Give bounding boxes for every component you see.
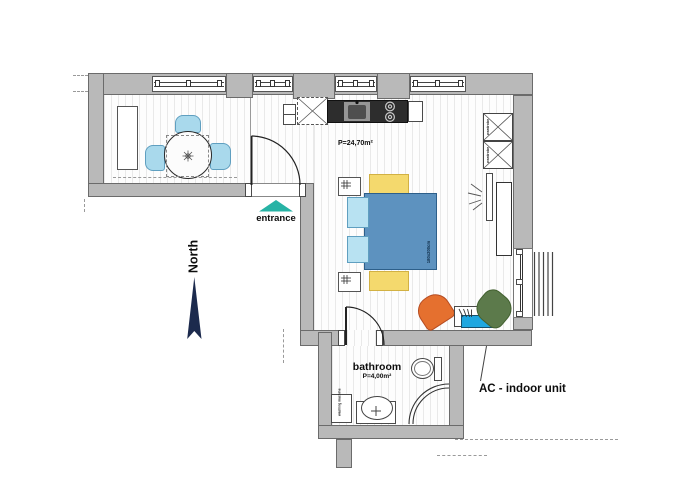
ac-leader-line (481, 346, 487, 381)
toilet-bowl-inner (414, 361, 431, 376)
window-handle (270, 80, 275, 87)
bathroom-bottom-wall (318, 425, 464, 439)
window-handle (435, 80, 440, 87)
toilet-tank (434, 357, 442, 381)
bed (364, 193, 437, 270)
dining-chair (210, 143, 231, 170)
dining-chair (145, 145, 165, 171)
bed-pillow (347, 197, 369, 228)
french-door-handle (516, 279, 523, 285)
washing-machine-label: washing machine (338, 400, 342, 416)
bathroom-area-label: P=4,00m² (347, 373, 407, 380)
hall-bench (117, 106, 138, 170)
main-room-bottom-wall (383, 330, 532, 346)
kitchen-sink-basin (348, 105, 366, 119)
entrance-marker-icon (259, 200, 293, 212)
kitchen-end-cabinet (408, 101, 423, 122)
window-handle (369, 80, 374, 87)
window-pier (377, 73, 410, 99)
right-window-panel (496, 182, 512, 256)
bathroom-label: bathroom (347, 361, 407, 373)
balcony-railing (535, 252, 553, 316)
bathroom-left-wall (318, 332, 332, 439)
window-handle (186, 80, 191, 87)
window-handle (217, 80, 222, 87)
bathroom-right-wall (449, 345, 464, 426)
hall-bottom-wall (88, 183, 251, 197)
entrance-label: entrance (249, 213, 303, 224)
window-handle (256, 80, 261, 87)
window (335, 76, 377, 92)
bed-size-label: 180x200cm (427, 239, 433, 264)
continuation-dash (73, 91, 88, 92)
hall-partition-line (250, 95, 251, 136)
ac-indoor-unit-label: AC - indoor unit (479, 383, 566, 395)
fridge (297, 97, 328, 125)
dining-table-extension (166, 135, 209, 177)
window-handle (413, 80, 418, 87)
window (152, 76, 226, 92)
french-door-handle (516, 249, 523, 255)
nightstand (338, 177, 361, 196)
radiator (486, 173, 493, 221)
continuation-dash (84, 199, 85, 212)
entrance-opening (251, 183, 300, 197)
window-handle (338, 80, 343, 87)
wardrobe-label: wardrobe (487, 118, 492, 136)
window (410, 76, 466, 92)
floor-plan: P=24,70m² entrance North bathroom P=4,00… (0, 0, 700, 500)
bedside-rug (369, 174, 409, 195)
entrance-jamb (299, 183, 306, 197)
window-pier (293, 73, 335, 99)
north-label: North (187, 235, 202, 279)
bedside-rug (369, 271, 409, 291)
window-handle (353, 80, 358, 87)
left-wall (88, 73, 104, 197)
bathroom-door-jamb (338, 330, 345, 346)
wall-stub-below-bathroom (336, 439, 352, 468)
entrance-jamb (245, 183, 252, 197)
window-pier (226, 73, 253, 98)
continuation-dash (73, 75, 88, 76)
french-door-handle (516, 311, 523, 317)
window-handle (285, 80, 290, 87)
window (253, 76, 293, 92)
continuation-dash (283, 329, 284, 363)
bathroom-door-jamb (376, 330, 383, 346)
wardrobe-label: wardrobe (487, 146, 492, 164)
window-handle (155, 80, 160, 87)
north-arrow-icon (187, 277, 201, 339)
kitchen-shelf-divider (284, 114, 295, 115)
main-room-area-label: P=24,70m² (338, 140, 373, 147)
kitchen-shelf (283, 104, 296, 125)
window-handle (458, 80, 463, 87)
bed-pillow (347, 236, 369, 263)
continuation-dash (455, 439, 618, 440)
hall-guide-dash (113, 177, 237, 178)
wash-basin (361, 396, 393, 420)
nightstand (338, 272, 361, 292)
continuation-dash (437, 455, 487, 456)
main-room-left-wall (300, 183, 314, 332)
